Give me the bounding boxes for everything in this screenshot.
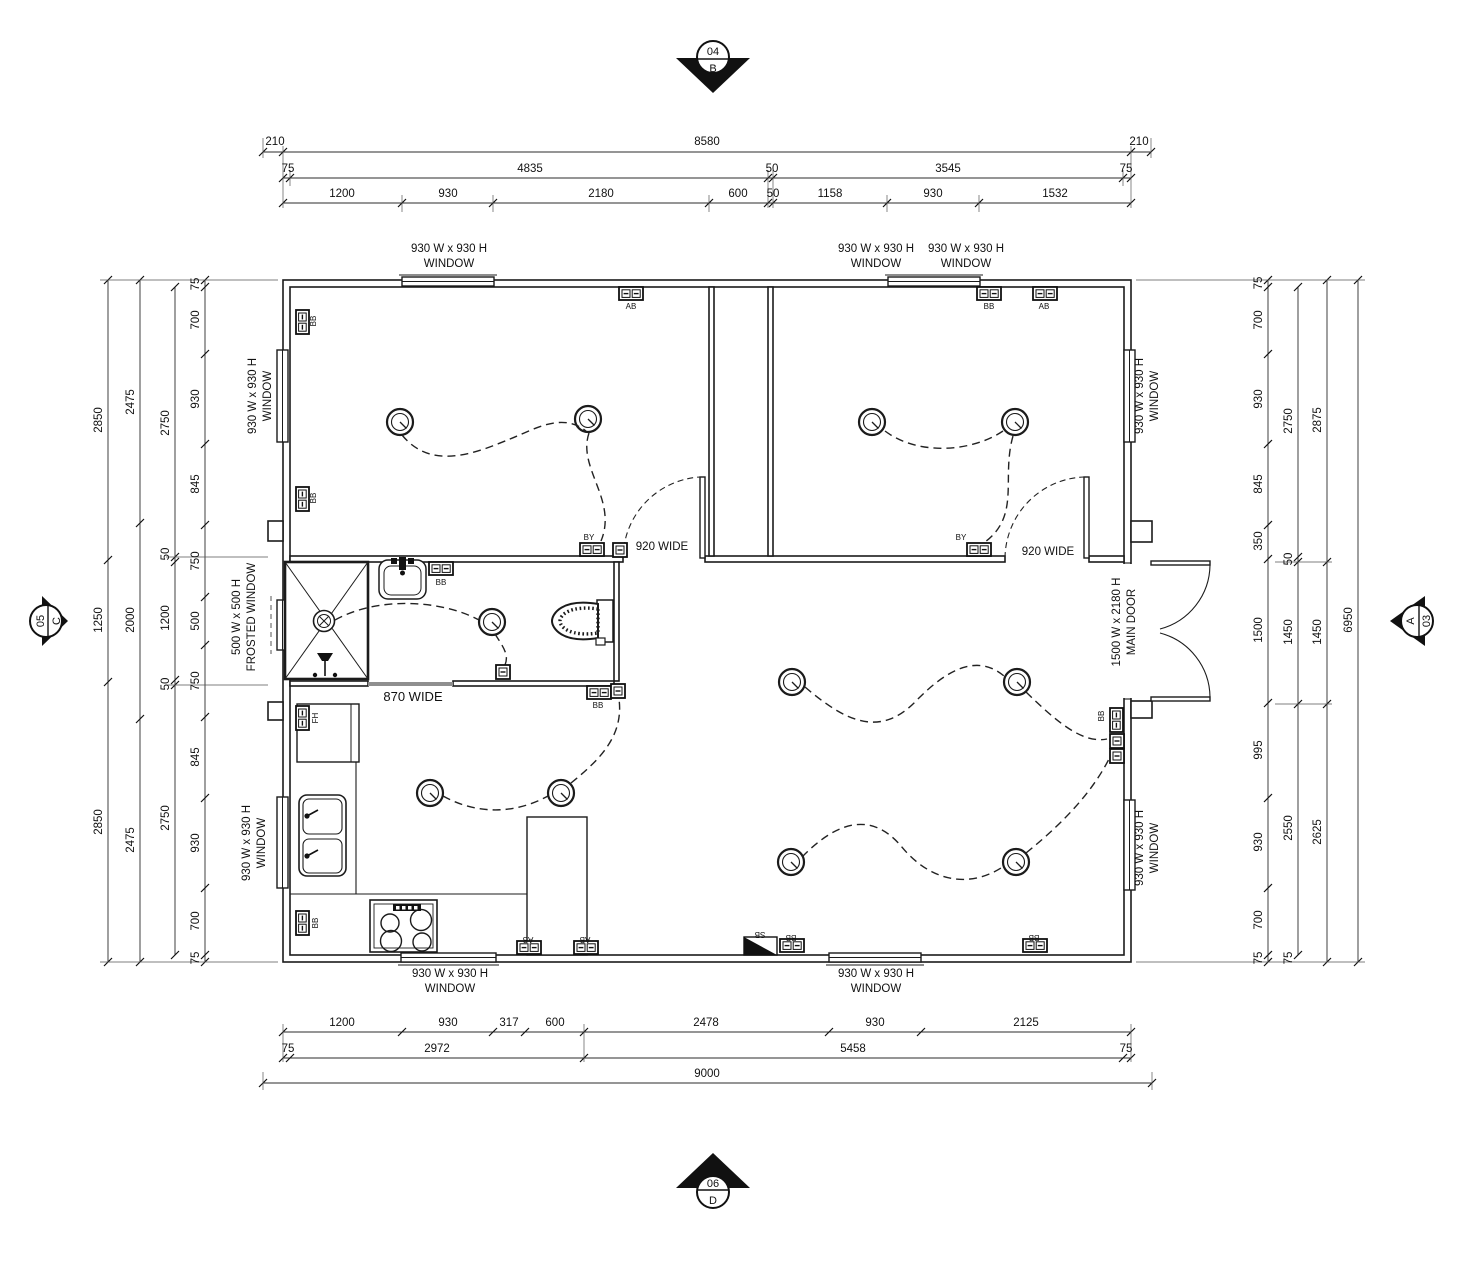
switch-label: BY	[956, 533, 967, 542]
annotation: WINDOW	[424, 258, 475, 270]
annotation: FROSTED WINDOW	[246, 563, 258, 672]
switch-label: AB	[626, 302, 637, 311]
dim-label: 75	[190, 952, 202, 965]
door-leaf	[1084, 477, 1089, 558]
dim-label: 1158	[818, 188, 843, 200]
dim-label: 4835	[517, 163, 543, 175]
switch-label: AB	[580, 935, 591, 944]
dim-label: 210	[265, 136, 284, 148]
annotation: 500 W x 500 H	[231, 579, 243, 655]
window-symbol	[398, 953, 499, 965]
switch-symbol	[580, 543, 604, 556]
marker-number: 05	[35, 615, 47, 627]
dim-label: 50	[160, 678, 172, 691]
dim-label: 2625	[1312, 819, 1324, 845]
bathroom-wall	[290, 681, 368, 686]
dim-label: 75	[1283, 952, 1295, 965]
interior-wall	[709, 287, 714, 556]
dim-label: 2750	[160, 410, 172, 436]
ceiling-light	[778, 849, 804, 875]
marker-letter: D	[709, 1195, 717, 1207]
switch-label: FH	[311, 712, 320, 723]
switch-symbol	[1110, 708, 1123, 732]
dim-label: 50	[766, 163, 779, 175]
dim-label: 2850	[93, 407, 105, 433]
dim-label: 845	[190, 474, 202, 493]
door-swing	[1160, 633, 1210, 697]
dim-label: 930	[190, 833, 202, 852]
dim-label: 1450	[1283, 619, 1295, 645]
switch-label: BB	[1029, 933, 1040, 942]
annotation: WINDOW	[1149, 823, 1161, 874]
dim-label: 9000	[694, 1068, 720, 1080]
dim-label: 930	[1253, 832, 1265, 851]
door-leaf	[1151, 561, 1210, 565]
annotation: WINDOW	[262, 371, 274, 422]
dim-label: 75	[1253, 277, 1265, 290]
section-marker-top: 04 B	[676, 41, 750, 93]
shower	[285, 562, 368, 679]
dim-label: 500	[190, 611, 202, 630]
main-door	[1151, 561, 1210, 701]
annotation: WINDOW	[1149, 371, 1161, 422]
door-swing	[1160, 565, 1210, 629]
switch-label: BB	[436, 578, 447, 587]
dim-label: 2000	[125, 607, 137, 633]
dim-label: 930	[865, 1017, 884, 1029]
wash-basin	[379, 557, 426, 599]
interior-wall	[1089, 556, 1124, 562]
dim-label: 1250	[93, 607, 105, 633]
switch-symbol	[496, 665, 510, 679]
dim-label: 930	[190, 389, 202, 408]
annotation: WINDOW	[851, 983, 902, 995]
annotation: 930 W x 930 H	[247, 358, 259, 434]
dim-label: 2750	[1283, 408, 1295, 434]
dim-label: 8580	[694, 136, 720, 148]
window-symbol	[399, 275, 497, 286]
dim-label: 1200	[329, 188, 355, 200]
switch-symbol	[967, 543, 991, 556]
annotation: 930 W x 930 H	[241, 805, 253, 881]
annotation: 920 WIDE	[1022, 546, 1075, 558]
door-leaf	[1151, 697, 1210, 701]
ceiling-light	[1004, 669, 1030, 695]
dim-label: 317	[499, 1017, 518, 1029]
interior-wall	[768, 287, 773, 556]
dim-label: 75	[282, 1043, 295, 1055]
dim-label: 6950	[1343, 607, 1355, 633]
outlet-symbol	[296, 706, 309, 730]
floor-plan-drawing: 04 B 06 D 05 C A 03 21085802107548355035…	[0, 0, 1484, 1264]
pier	[268, 521, 283, 541]
annotation: WINDOW	[851, 258, 902, 270]
window-symbol	[277, 350, 288, 442]
dim-label: 700	[190, 310, 202, 329]
annotation: MAIN DOOR	[1126, 589, 1138, 655]
dim-label: 700	[1253, 310, 1265, 329]
annotation: 870 WIDE	[383, 689, 443, 704]
ceiling-light	[575, 406, 601, 432]
outer-wall-inner-face	[290, 287, 1124, 955]
dim-label: 75	[1120, 163, 1133, 175]
ceiling-light	[479, 609, 505, 635]
bathroom-wall	[614, 562, 619, 681]
annotation: 930 W x 930 H	[838, 243, 914, 255]
ceiling-light	[417, 780, 443, 806]
bathroom-door-threshold	[368, 682, 453, 686]
switch-symbol	[613, 543, 627, 557]
pier	[268, 702, 283, 720]
dim-label: 75	[190, 278, 202, 291]
outlet-symbol	[977, 287, 1001, 300]
dim-label: 1500	[1253, 617, 1265, 643]
outlet-symbol	[429, 562, 453, 575]
annotation: 930 W x 930 H	[411, 243, 487, 255]
dim-label: 2875	[1312, 407, 1324, 433]
dim-label: 930	[1253, 389, 1265, 408]
switch-label: BY	[584, 533, 595, 542]
marker-number: A	[1405, 617, 1417, 625]
window-symbol	[885, 275, 983, 286]
annotation: WINDOW	[941, 258, 992, 270]
switch-symbol	[1110, 734, 1124, 748]
dim-label: 845	[1253, 474, 1265, 493]
dim-label: 2180	[588, 188, 614, 200]
outlet-symbol	[619, 287, 643, 300]
dim-label: 50	[1283, 553, 1295, 566]
switch-label: BB	[311, 918, 320, 929]
ceiling-light	[1003, 849, 1029, 875]
dim-label: 700	[190, 911, 202, 930]
switch-label: BB	[984, 302, 995, 311]
dim-label: 600	[545, 1017, 564, 1029]
switch-label: BB	[593, 701, 604, 710]
dim-label: 2475	[125, 827, 137, 853]
dim-label: 2478	[693, 1017, 719, 1029]
ceiling-light	[387, 409, 413, 435]
marker-letter: B	[709, 63, 716, 75]
switch-label: SB	[755, 930, 766, 939]
marker-letter: 03	[1421, 615, 1433, 627]
annotation: 930 W x 930 H	[1134, 358, 1146, 434]
section-marker-right: A 03	[1390, 596, 1433, 646]
dim-label: 1532	[1042, 188, 1068, 200]
dim-label: 50	[160, 548, 172, 561]
switch-label: BB	[309, 493, 318, 504]
dim-label: 75	[1253, 952, 1265, 965]
dim-label: 3545	[935, 163, 961, 175]
kitchen-sink	[299, 795, 346, 876]
dim-label: 995	[1253, 740, 1265, 759]
dim-label: 1200	[160, 605, 172, 631]
pier	[1131, 701, 1152, 718]
dim-label: 1450	[1312, 619, 1324, 645]
annotation: 930 W x 930 H	[838, 968, 914, 980]
switch-label: BB	[309, 316, 318, 327]
switch-symbol	[611, 684, 625, 698]
annotation: WINDOW	[425, 983, 476, 995]
dim-label: 930	[438, 1017, 457, 1029]
dim-label: 700	[1253, 910, 1265, 929]
annotation: 930 W x 930 H	[412, 968, 488, 980]
annotation: 930 W x 930 H	[928, 243, 1004, 255]
annotation: 1500 W x 2180 H	[1111, 578, 1123, 667]
dim-label: 750	[190, 551, 202, 570]
dim-label: 600	[728, 188, 747, 200]
section-marker-left: 05 C	[30, 596, 68, 646]
dim-label: 2125	[1013, 1017, 1039, 1029]
marker-number: 04	[707, 46, 719, 58]
switch-label: AB	[523, 935, 534, 944]
outlet-symbol	[587, 686, 611, 699]
window-symbol	[277, 797, 288, 888]
outlet-symbol	[296, 487, 309, 511]
dim-label: 75	[1120, 1043, 1133, 1055]
outlet-symbol	[296, 310, 309, 334]
dim-label: 2550	[1283, 815, 1295, 841]
dim-label: 75	[282, 163, 295, 175]
dim-label: 5458	[840, 1043, 866, 1055]
pier	[1131, 521, 1152, 542]
switch-symbol	[1110, 749, 1124, 763]
dim-label: 2972	[424, 1043, 450, 1055]
dim-label: 2475	[125, 389, 137, 415]
annotation: 920 WIDE	[636, 541, 689, 553]
ceiling-light	[779, 669, 805, 695]
outlet-symbol	[1033, 287, 1057, 300]
dim-label: 845	[190, 747, 202, 766]
dim-label: 210	[1129, 136, 1148, 148]
floor-plan-page: 04 B 06 D 05 C A 03 21085802107548355035…	[0, 0, 1484, 1264]
annotation: 930 W x 930 H	[1134, 810, 1146, 886]
section-marker-bottom: 06 D	[676, 1153, 750, 1208]
dim-label: 930	[923, 188, 942, 200]
shower-drain-icon	[314, 611, 335, 632]
dim-label: 750	[190, 671, 202, 690]
ceiling-light	[1002, 409, 1028, 435]
marker-letter: C	[51, 617, 63, 625]
window-symbol	[826, 953, 924, 965]
dim-label: 2850	[93, 809, 105, 835]
annotation: WINDOW	[256, 818, 268, 869]
outlet-symbol	[296, 911, 309, 935]
door-leaf	[700, 477, 705, 558]
ceiling-light	[548, 780, 574, 806]
dim-label: 2750	[160, 805, 172, 831]
dim-label: 930	[438, 188, 457, 200]
interior-wall	[705, 556, 1005, 562]
stove	[370, 900, 437, 952]
ceiling-light	[859, 409, 885, 435]
switch-label: AB	[1039, 302, 1050, 311]
dim-label: 50	[767, 188, 780, 200]
dim-label: 350	[1253, 531, 1265, 550]
switch-label: BB	[1097, 711, 1106, 722]
kitchen-island	[527, 817, 587, 955]
dim-label: 1200	[329, 1017, 355, 1029]
marker-number: 06	[707, 1178, 719, 1190]
switch-label: BB	[786, 933, 797, 942]
